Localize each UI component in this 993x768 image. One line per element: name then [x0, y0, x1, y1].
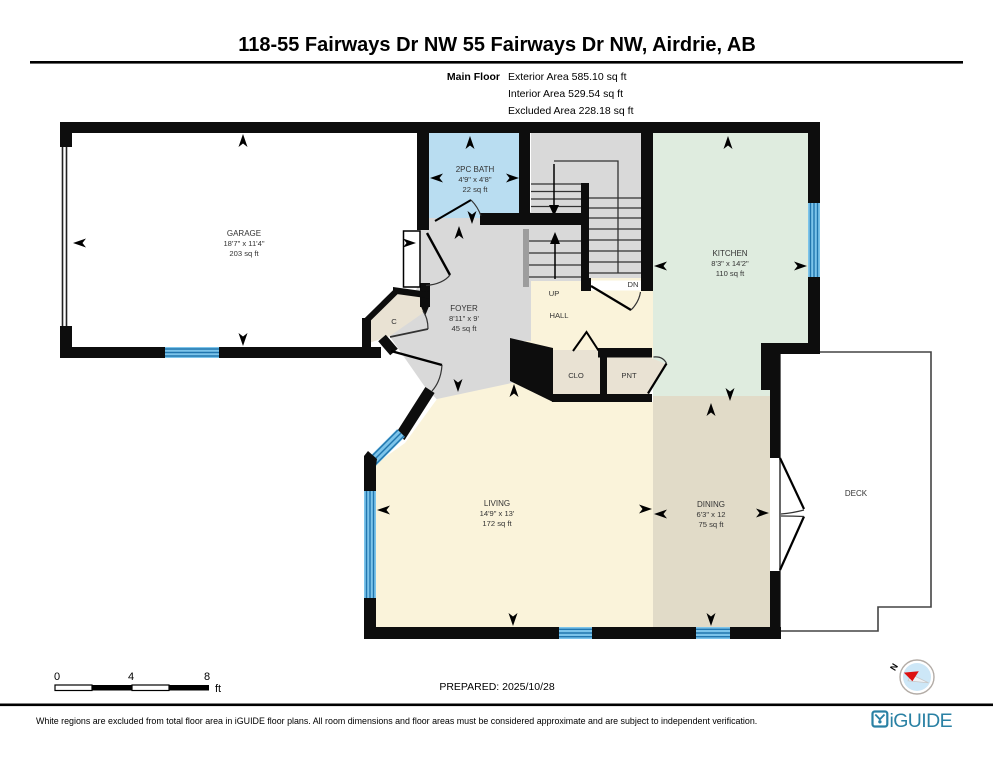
- svg-text:LIVING: LIVING: [484, 499, 510, 508]
- svg-text:DN: DN: [628, 280, 639, 289]
- svg-text:45 sq ft: 45 sq ft: [452, 324, 478, 333]
- svg-text:8'3" x 14'2": 8'3" x 14'2": [711, 259, 749, 268]
- svg-text:PNT: PNT: [621, 371, 637, 380]
- svg-text:22 sq ft: 22 sq ft: [463, 185, 489, 194]
- svg-text:0: 0: [54, 671, 60, 683]
- svg-text:KITCHEN: KITCHEN: [712, 249, 747, 258]
- svg-text:DINING: DINING: [697, 500, 725, 509]
- svg-text:CLO: CLO: [568, 371, 584, 380]
- svg-text:2PC BATH: 2PC BATH: [456, 165, 495, 174]
- svg-text:110 sq ft: 110 sq ft: [716, 269, 745, 278]
- svg-text:iGUIDE: iGUIDE: [890, 710, 953, 732]
- svg-text:8'11" x 9': 8'11" x 9': [449, 314, 479, 323]
- svg-text:4'9" x 4'8": 4'9" x 4'8": [458, 175, 492, 184]
- svg-text:FOYER: FOYER: [450, 304, 478, 313]
- svg-text:4: 4: [128, 671, 134, 683]
- svg-text:C: C: [391, 317, 397, 326]
- svg-text:75 sq ft: 75 sq ft: [699, 520, 725, 529]
- svg-text:Excluded Area 228.18 sq ft: Excluded Area 228.18 sq ft: [508, 105, 634, 117]
- svg-text:Interior Area 529.54 sq ft: Interior Area 529.54 sq ft: [508, 88, 623, 100]
- svg-text:118-55 Fairways Dr NW 55 Fairw: 118-55 Fairways Dr NW 55 Fairways Dr NW,…: [238, 34, 756, 56]
- svg-text:172 sq ft: 172 sq ft: [482, 519, 512, 528]
- svg-text:203 sq ft: 203 sq ft: [229, 249, 259, 258]
- svg-text:UP: UP: [549, 289, 560, 298]
- svg-text:White regions are excluded fro: White regions are excluded from total fl…: [36, 716, 757, 726]
- svg-text:ft: ft: [215, 683, 221, 695]
- svg-text:Main Floor: Main Floor: [447, 71, 500, 83]
- svg-text:PREPARED: 2025/10/28: PREPARED: 2025/10/28: [439, 681, 555, 693]
- svg-text:14'9" x 13': 14'9" x 13': [480, 509, 515, 518]
- svg-text:HALL: HALL: [550, 311, 569, 320]
- svg-text:18'7" x 11'4": 18'7" x 11'4": [223, 239, 264, 248]
- svg-text:DECK: DECK: [845, 489, 868, 498]
- svg-text:8: 8: [204, 671, 210, 683]
- svg-text:Exterior Area 585.10 sq ft: Exterior Area 585.10 sq ft: [508, 71, 627, 83]
- svg-text:GARAGE: GARAGE: [227, 229, 261, 238]
- svg-text:6'3" x 12: 6'3" x 12: [696, 510, 725, 519]
